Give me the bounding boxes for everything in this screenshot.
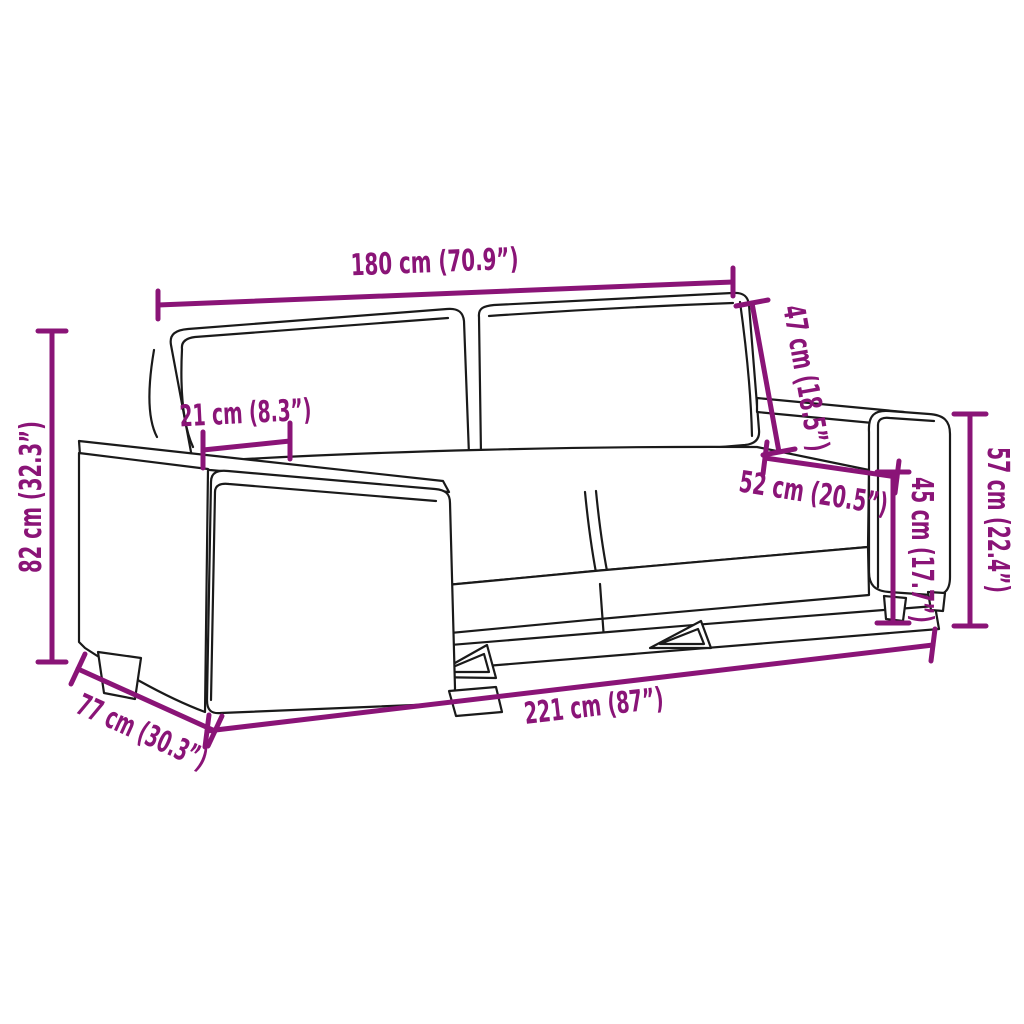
dim-label-overall-width-top: 180 cm (70.9”)	[350, 242, 519, 284]
left-cushion-side-bulge	[149, 350, 157, 437]
sofa-dimension-diagram: 180 cm (70.9”) 82 cm (32.3”) 21 cm (8.3”…	[0, 0, 1024, 1024]
dim-label-total-height: 82 cm (32.3”)	[14, 421, 49, 573]
dim-label-armrest-height: 57 cm (22.4”)	[980, 447, 1015, 593]
dim-label-backrest-height: 47 cm (18.5”)	[775, 302, 835, 454]
diagram-canvas: 180 cm (70.9”) 82 cm (32.3”) 21 cm (8.3”…	[0, 0, 1024, 1024]
dim-label-armrest-width: 21 cm (8.3”)	[179, 393, 313, 435]
left-armrest-pad	[207, 471, 455, 713]
left-armrest-front-face	[79, 453, 208, 712]
dim-label-seat-height: 45 cm (17.7”)	[904, 477, 939, 623]
right-back-cushion	[479, 293, 759, 466]
